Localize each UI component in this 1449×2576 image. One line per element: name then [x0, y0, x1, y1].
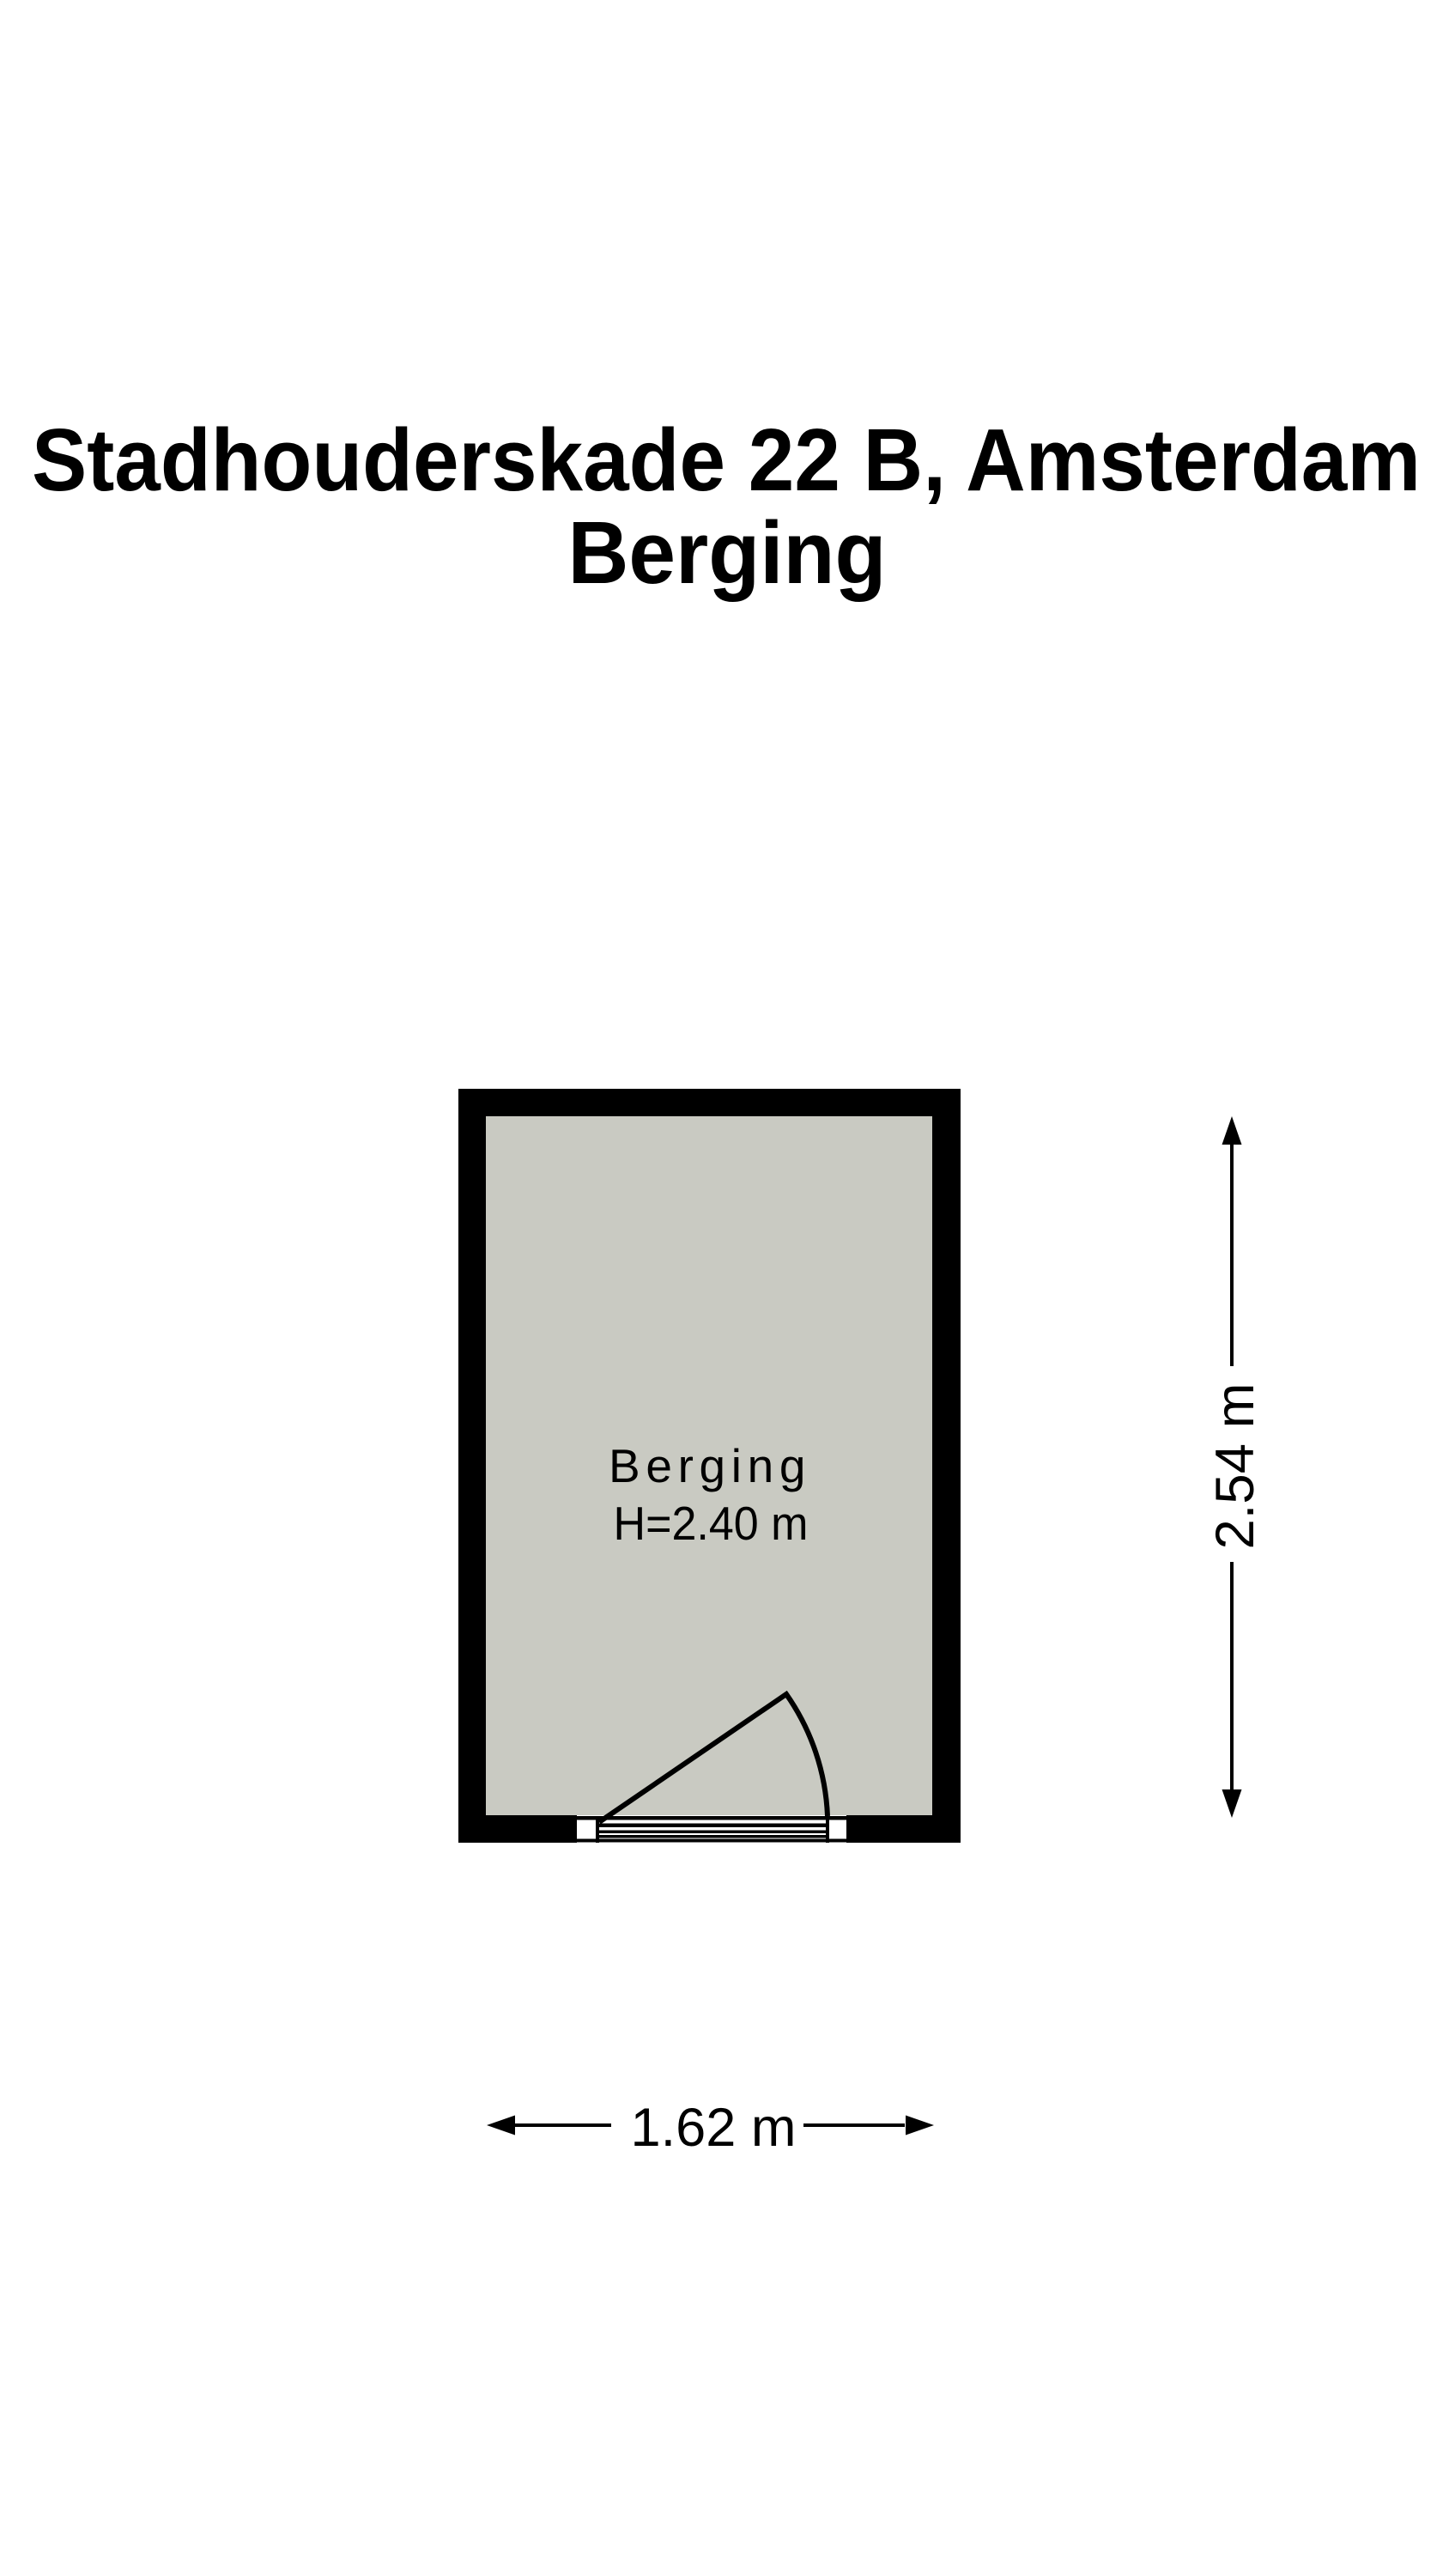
svg-text:Berging: Berging: [568, 503, 887, 602]
svg-text:2.54 m: 2.54 m: [1205, 1383, 1265, 1550]
svg-text:1.62 m: 1.62 m: [631, 2098, 797, 2158]
svg-text:Berging: Berging: [609, 1439, 809, 1492]
svg-text:H=2.40 m: H=2.40 m: [614, 1497, 809, 1550]
svg-text:Stadhouderskade 22 B, Amsterda: Stadhouderskade 22 B, Amsterdam: [32, 410, 1421, 509]
